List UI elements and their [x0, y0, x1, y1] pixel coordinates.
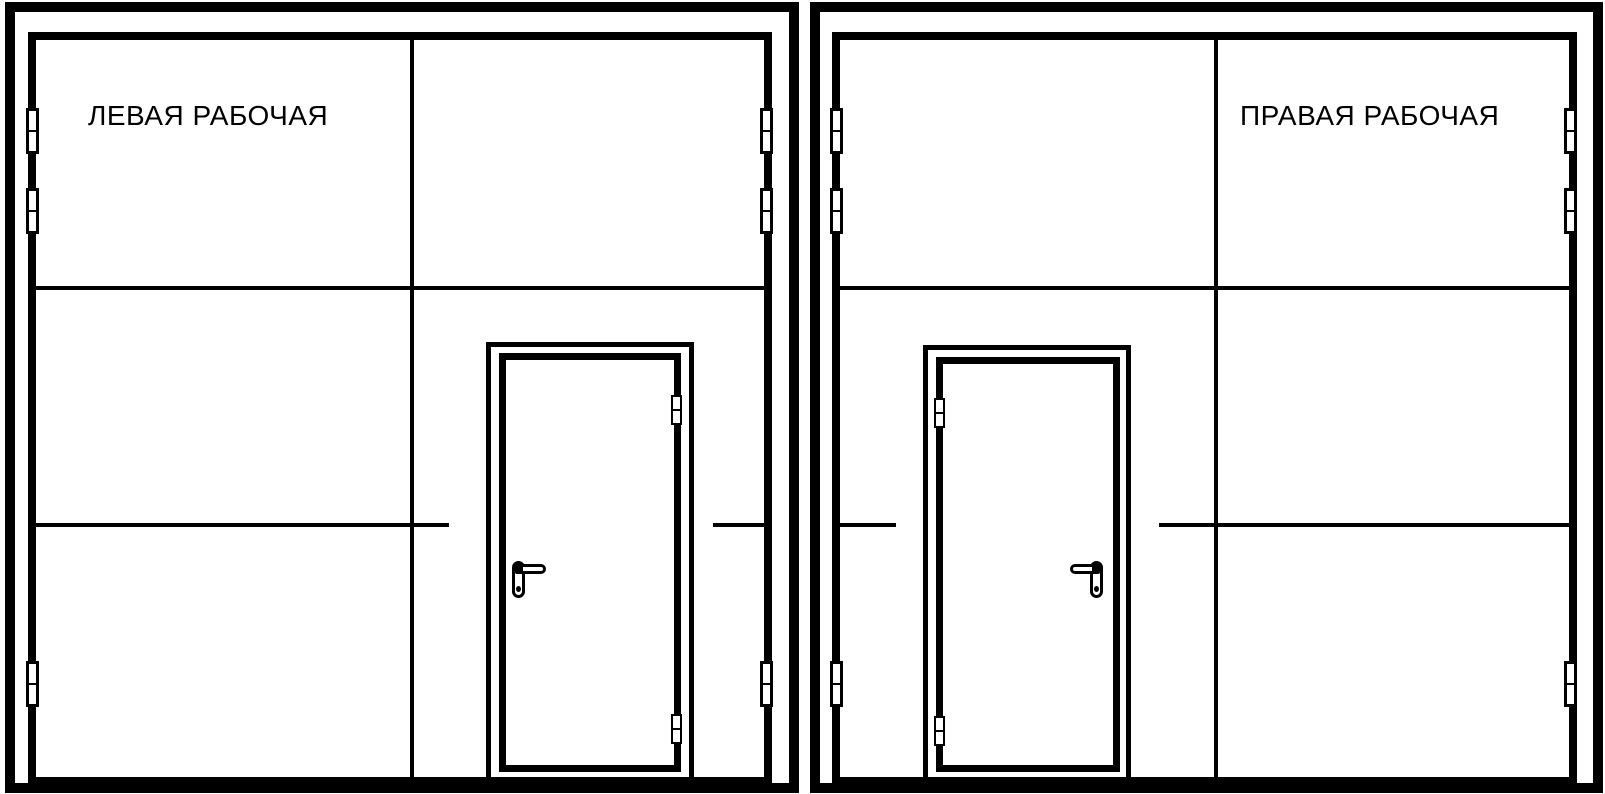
- panel-joint-line-upper: [36, 286, 764, 290]
- gate-hinge-icon: [760, 188, 773, 234]
- gate-hinge-icon: [1564, 661, 1577, 707]
- gate-hinge-icon: [26, 108, 39, 154]
- panel-joint-line-lower-right-segment: [1159, 523, 1569, 527]
- gate-hinge-icon: [1564, 108, 1577, 154]
- gate-hinge-icon: [830, 108, 843, 154]
- handle-hub-icon: [515, 564, 523, 574]
- wicket-door-leaf: [499, 353, 681, 772]
- gate-hinge-icon: [26, 661, 39, 707]
- gate-hinge-icon: [26, 188, 39, 234]
- panel-joint-line-lower-left-segment: [36, 523, 449, 527]
- panel-joint-line-lower-left-segment: [840, 523, 896, 527]
- door-hinge-icon: [671, 395, 682, 425]
- diagram-label: ПРАВАЯ РАБОЧАЯ: [1240, 101, 1499, 131]
- leaf-divider-line: [1214, 40, 1218, 777]
- diagram-label: ЛЕВАЯ РАБОЧАЯ: [88, 101, 328, 131]
- leaf-divider-line: [410, 40, 414, 777]
- handle-hub-icon: [1092, 564, 1100, 574]
- door-hinge-icon: [934, 716, 945, 746]
- gate-hinge-icon: [830, 661, 843, 707]
- door-hinge-icon: [934, 398, 945, 428]
- panel-joint-line-lower-right-segment: [713, 523, 764, 527]
- gate-hinge-icon: [1564, 188, 1577, 234]
- panel-joint-line-upper: [840, 286, 1569, 290]
- gate-hinge-icon: [760, 661, 773, 707]
- gate-hinge-icon: [760, 108, 773, 154]
- keyhole-icon: [516, 586, 521, 592]
- gate-hinge-icon: [830, 188, 843, 234]
- door-hinge-icon: [671, 714, 682, 744]
- keyhole-icon: [1094, 586, 1099, 592]
- drawing-canvas: ЛЕВАЯ РАБОЧАЯ ПРАВАЯ РАБОЧАЯ: [0, 0, 1605, 794]
